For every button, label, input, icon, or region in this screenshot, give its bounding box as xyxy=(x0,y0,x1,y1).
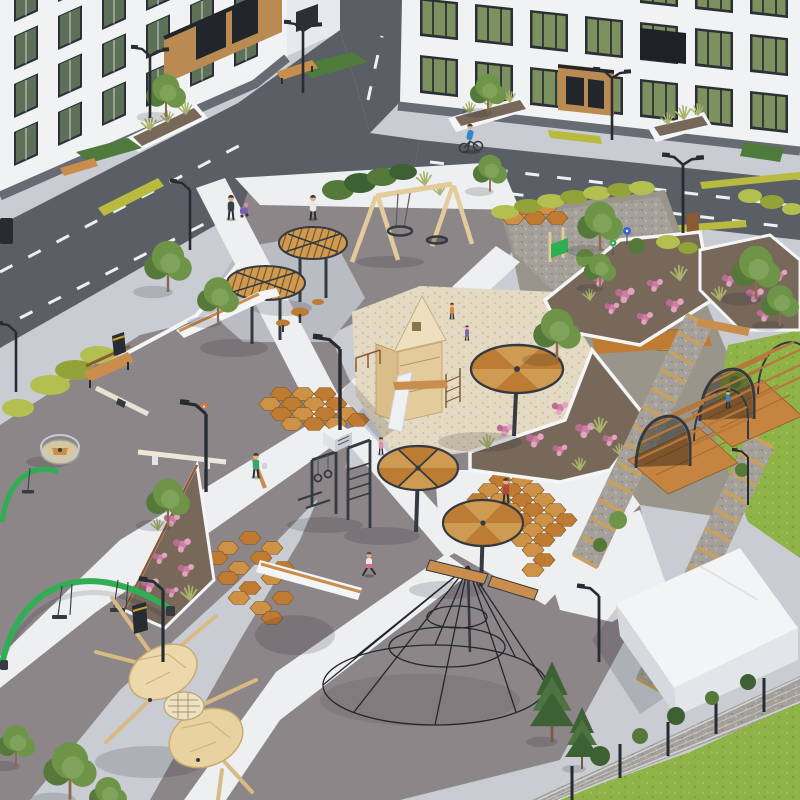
courtyard-render xyxy=(0,0,800,800)
render-viewport xyxy=(0,0,800,800)
ground-spinner-ring xyxy=(427,237,447,244)
shopfront-dark xyxy=(640,28,686,64)
